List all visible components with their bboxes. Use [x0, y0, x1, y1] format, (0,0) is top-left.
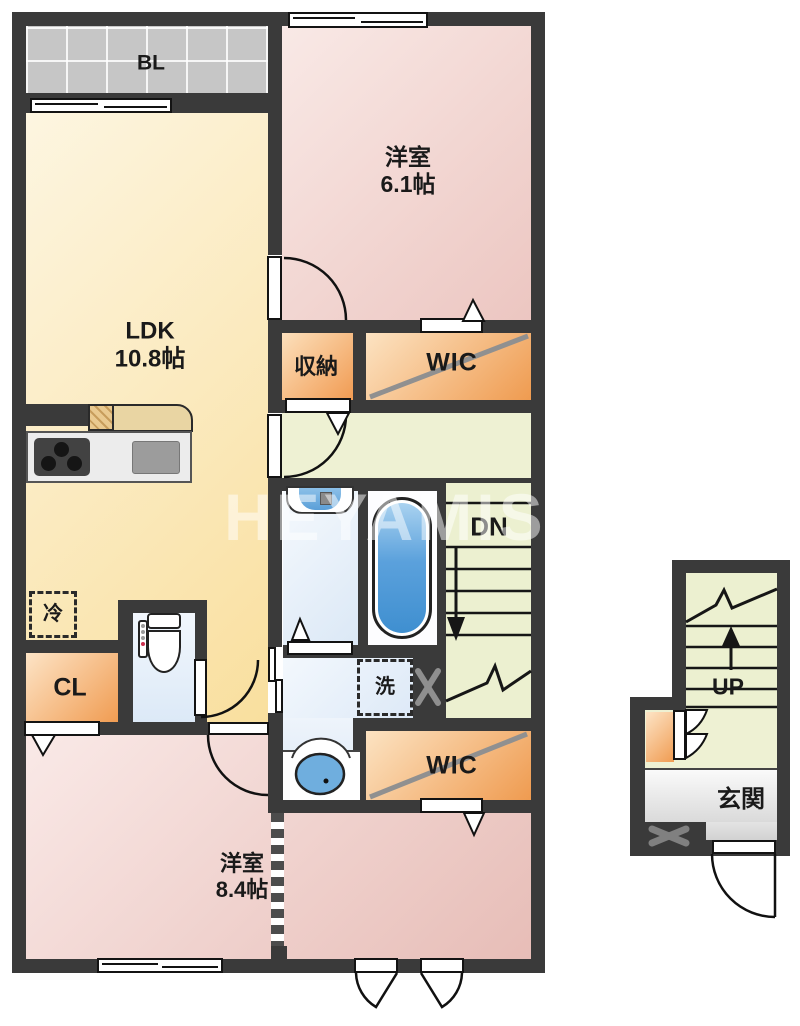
casement-right	[421, 973, 462, 1007]
wall	[12, 12, 26, 973]
wall	[118, 600, 207, 613]
door-arc-entrance	[712, 854, 775, 917]
label-balcony: BL	[137, 52, 165, 77]
wall	[268, 320, 545, 333]
floorplan: BL 洋室 6.1帖 LDK 10.8帖 収納 WIC DN 冷 洗 CL WI…	[0, 0, 800, 1026]
door-leaf-corridor	[267, 414, 282, 478]
sliding-door-panel	[268, 647, 276, 682]
watermark: HEYAMIS	[224, 470, 546, 564]
stove-burner	[41, 456, 56, 471]
closet-opening-wic-upper	[420, 318, 483, 333]
label-ldk: LDK 10.8帖	[115, 318, 186, 375]
partition-stub	[271, 946, 287, 960]
bedroom1-name: 洋室	[385, 144, 431, 170]
window-balcony	[30, 98, 172, 113]
stove-burner	[54, 442, 69, 457]
ldk-size: 10.8帖	[115, 346, 186, 373]
wall	[118, 613, 133, 722]
dashed-partition	[271, 813, 284, 950]
kitchen-counter-extension	[112, 404, 193, 432]
kitchen-wood-block	[88, 404, 115, 431]
toilet-control-icon	[138, 620, 148, 658]
room-genkan-step	[706, 822, 777, 840]
wall	[268, 12, 282, 255]
wall	[630, 697, 645, 856]
casement-door-bar-left	[354, 958, 398, 973]
wall	[413, 658, 446, 722]
casement-door-bar-right	[420, 958, 464, 973]
label-washer: 洗	[375, 676, 395, 700]
casement-doors	[356, 973, 462, 1007]
wall	[12, 959, 545, 973]
bifold-door-bar	[673, 710, 686, 760]
wall	[268, 800, 545, 813]
closet-opening-cl	[24, 721, 100, 736]
toilet-tank-icon	[147, 613, 181, 629]
wall	[777, 560, 790, 856]
label-storage: 収納	[294, 354, 338, 380]
door-leaf-toilet	[194, 659, 207, 716]
wall	[672, 560, 686, 700]
wall	[353, 333, 366, 400]
stove-burner	[67, 456, 82, 471]
closet-opening-storage	[285, 398, 351, 413]
label-stairs-up: UP	[712, 673, 744, 700]
wall	[672, 560, 790, 573]
bedroom2-size: 8.4帖	[216, 877, 269, 902]
casement-left	[356, 973, 397, 1007]
closet-opening-wic-lower	[420, 798, 483, 813]
label-bedroom2: 洋室 8.4帖	[216, 851, 269, 903]
door-bar-washroom	[287, 641, 353, 655]
wall	[12, 640, 118, 653]
wall	[353, 718, 545, 731]
entrance-door-opening	[712, 840, 776, 854]
window-bedroom1	[288, 12, 428, 28]
label-bedroom1: 洋室 6.1帖	[381, 144, 436, 198]
sink-icon	[132, 441, 180, 474]
door-leaf-bedroom1	[267, 256, 282, 320]
ldk-name: LDK	[125, 318, 174, 345]
sliding-door-panel	[275, 679, 283, 713]
door-leaf-bedroom2	[208, 722, 269, 735]
label-closet-cl: CL	[53, 673, 86, 703]
washstand-counter	[283, 750, 360, 800]
window-bedroom2	[97, 958, 223, 973]
label-wic-upper: WIC	[426, 348, 478, 378]
label-genkan: 玄関	[717, 786, 765, 814]
room-corridor	[282, 413, 531, 478]
shoe-cabinet	[646, 712, 674, 762]
bedroom1-size: 6.1帖	[381, 171, 436, 197]
wall	[645, 822, 706, 840]
label-fridge: 冷	[43, 603, 63, 627]
bedroom2-name: 洋室	[220, 851, 264, 876]
label-wic-lower: WIC	[426, 751, 478, 781]
kitchen-wall-stub	[23, 404, 88, 426]
